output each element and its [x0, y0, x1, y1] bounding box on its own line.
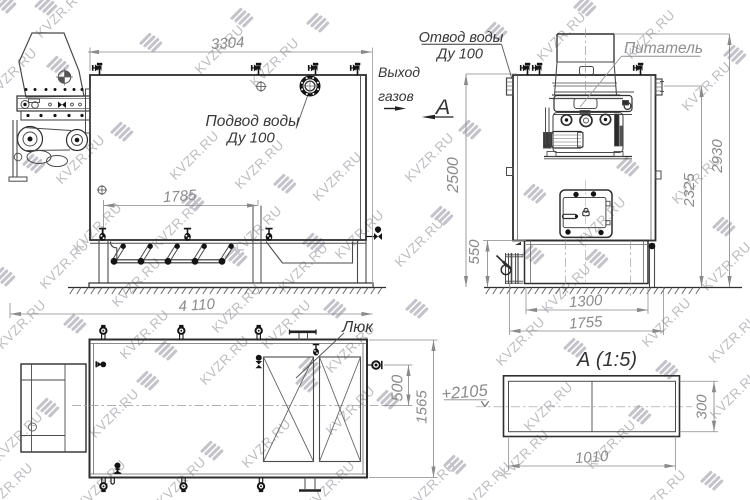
svg-text:500: 500	[390, 375, 407, 402]
svg-text:Ду 100: Ду 100	[225, 130, 275, 147]
svg-text:KVZR.RU: KVZR.RU	[117, 307, 172, 362]
svg-text:KVZR.RU: KVZR.RU	[706, 311, 750, 366]
svg-text:KVZR.RU: KVZR.RU	[534, 9, 589, 64]
svg-text:KVZR.RU: KVZR.RU	[310, 149, 365, 204]
svg-text:Отвод воды: Отвод воды	[419, 30, 504, 46]
svg-text:KVZR.RU: KVZR.RU	[239, 416, 294, 471]
svg-text:KVZR.RU: KVZR.RU	[0, 460, 36, 500]
svg-text:2325: 2325	[681, 173, 698, 208]
svg-text:KVZR.RU: KVZR.RU	[639, 295, 694, 350]
svg-text:KVZR.RU: KVZR.RU	[276, 240, 331, 295]
svg-text:KVZR.RU: KVZR.RU	[0, 45, 40, 100]
svg-text:KVZR.RU: KVZR.RU	[707, 367, 750, 422]
svg-text:1755: 1755	[568, 313, 603, 332]
svg-text:KVZR.RU: KVZR.RU	[392, 215, 447, 270]
svg-text:KVZR.RU: KVZR.RU	[699, 239, 750, 294]
svg-text:4 110: 4 110	[178, 296, 216, 316]
svg-text:KVZR.RU: KVZR.RU	[0, 409, 46, 464]
svg-text:1565: 1565	[414, 390, 431, 424]
svg-text:550: 550	[466, 239, 483, 265]
svg-text:KVZR.RU: KVZR.RU	[53, 132, 108, 187]
svg-text:KVZR.RU: KVZR.RU	[87, 386, 142, 441]
svg-text:KVZR.RU: KVZR.RU	[230, 203, 285, 258]
svg-text:KVZR.RU: KVZR.RU	[37, 237, 92, 292]
svg-text:300: 300	[694, 394, 711, 420]
svg-text:1785: 1785	[162, 187, 197, 206]
svg-text:газов: газов	[378, 88, 414, 104]
svg-text:Люк: Люк	[341, 319, 374, 336]
svg-text:Питатель: Питатель	[624, 40, 703, 57]
svg-text:2500: 2500	[445, 157, 462, 194]
svg-text:1010: 1010	[574, 448, 609, 467]
svg-text:Подвод воды: Подвод воды	[205, 113, 300, 130]
svg-text:KVZR.RU: KVZR.RU	[303, 458, 358, 500]
svg-text:KVZR.RU: KVZR.RU	[634, 467, 689, 500]
svg-text:KVZR.RU: KVZR.RU	[209, 281, 264, 336]
svg-text:KVZR.RU: KVZR.RU	[0, 297, 49, 352]
svg-text:KVZR.RU: KVZR.RU	[167, 128, 222, 183]
svg-text:2930: 2930	[709, 139, 726, 174]
svg-text:KVZR.RU: KVZR.RU	[332, 207, 387, 262]
svg-text:KVZR.RU: KVZR.RU	[493, 314, 548, 369]
svg-text:KVZR.RU: KVZR.RU	[247, 35, 302, 90]
svg-text:3304: 3304	[210, 34, 244, 53]
svg-text:1300: 1300	[568, 292, 603, 311]
svg-text:KVZR.RU: KVZR.RU	[197, 333, 252, 388]
svg-text:Ду 100: Ду 100	[435, 47, 483, 63]
svg-text:А (1:5): А (1:5)	[576, 349, 637, 371]
svg-text:Выход: Выход	[378, 64, 420, 80]
svg-text:А: А	[434, 95, 450, 119]
svg-text:KVZR.RU: KVZR.RU	[521, 379, 576, 434]
svg-text:KVZR.RU: KVZR.RU	[323, 383, 378, 438]
